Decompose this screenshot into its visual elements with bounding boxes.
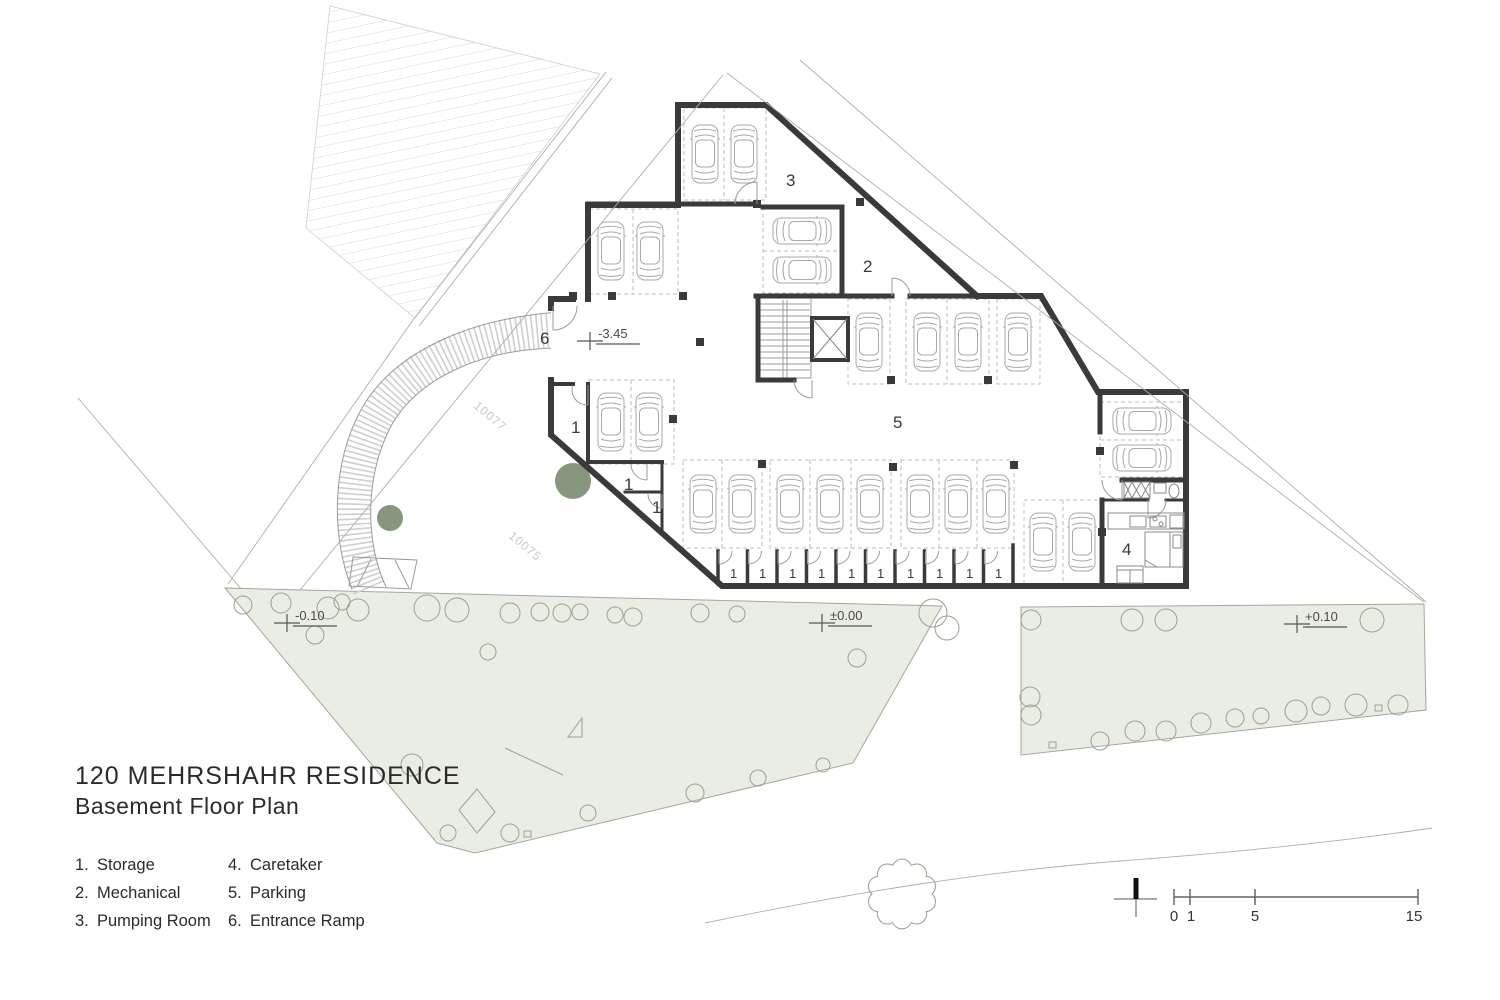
parcel-number: 10075	[506, 529, 544, 564]
legend-num: 5.	[228, 884, 242, 902]
cell-label: 1	[759, 566, 766, 581]
level-value: -0.10	[295, 608, 325, 623]
room-label-parking: 5	[893, 413, 902, 432]
scale-bar: 0 1 5 15	[1170, 889, 1423, 925]
plan-drawing: 3 2 6 5 1 1 1 4 1 1 1 1 1 1 1 1 1 1 1007…	[0, 0, 1500, 1000]
room-label-storage: 1	[652, 498, 661, 517]
scale-tick-label: 0	[1170, 908, 1178, 925]
scale-tick-label: 1	[1187, 908, 1195, 925]
legend: 1. Storage 2. Mechanical 3. Pumping Room…	[75, 856, 365, 930]
north-marker-icon	[1114, 878, 1157, 917]
room-label-pumping: 3	[786, 171, 795, 190]
room-label-caretaker: 4	[1122, 540, 1131, 559]
cell-label: 1	[789, 566, 796, 581]
landscape-right	[1021, 604, 1426, 755]
parcel-number: 10077	[471, 399, 509, 434]
legend-num: 4.	[228, 856, 242, 874]
legend-num: 1.	[75, 856, 89, 874]
neighbor-hatch-area	[228, 6, 612, 584]
project-title: 120 MEHRSHAHR RESIDENCE	[75, 762, 461, 790]
room-label-ramp: 6	[540, 329, 549, 348]
legend-num: 6.	[228, 912, 242, 930]
cell-label: 1	[995, 566, 1002, 581]
legend-num: 3.	[75, 912, 89, 930]
room-label-mechanical: 2	[863, 257, 872, 276]
legend-label: Storage	[97, 856, 155, 874]
tree-icon	[377, 505, 403, 531]
level-value: ±0.00	[830, 608, 862, 623]
level-value: -3.45	[598, 326, 628, 341]
landscape-left	[225, 588, 942, 853]
cell-label: 1	[966, 566, 973, 581]
level-value: +0.10	[1305, 609, 1338, 624]
cell-label: 1	[730, 566, 737, 581]
legend-label: Parking	[250, 884, 306, 902]
ramp-gate	[349, 557, 417, 589]
cell-label: 1	[936, 566, 943, 581]
cell-label: 1	[907, 566, 914, 581]
cell-label: 1	[877, 566, 884, 581]
room-label-storage: 1	[571, 418, 580, 437]
bush-tree-outline	[868, 859, 935, 929]
scale-tick-label: 15	[1406, 908, 1423, 925]
cell-label: 1	[818, 566, 825, 581]
floor-plan-sheet: 3 2 6 5 1 1 1 4 1 1 1 1 1 1 1 1 1 1 1007…	[0, 0, 1500, 1000]
cell-label: 1	[848, 566, 855, 581]
elevator	[812, 318, 848, 360]
legend-label: Pumping Room	[97, 912, 211, 930]
drawing-title: Basement Floor Plan	[75, 793, 299, 819]
legend-label: Caretaker	[250, 856, 323, 874]
road-edge-line	[705, 828, 1432, 923]
legend-label: Entrance Ramp	[250, 912, 365, 930]
parcel-labels: 10077 10075	[471, 399, 544, 564]
legend-num: 2.	[75, 884, 89, 902]
room-label-storage: 1	[624, 475, 633, 494]
legend-label: Mechanical	[97, 884, 180, 902]
scale-tick-label: 5	[1251, 908, 1259, 925]
